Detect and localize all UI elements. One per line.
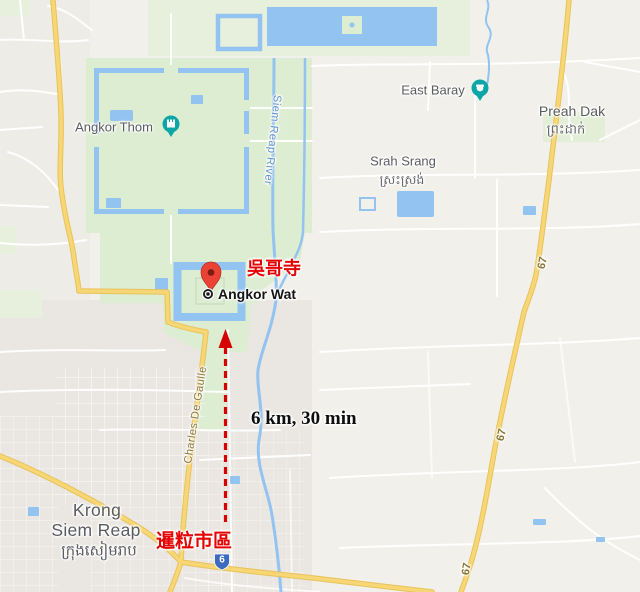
castle-icon [167, 120, 175, 128]
krong-siem-reap-label-line2[interactable]: Siem Reap [51, 520, 140, 540]
urban-area-west [0, 0, 90, 300]
neak-pean-pond [350, 23, 355, 28]
angkor-thom-label[interactable]: Angkor Thom [75, 121, 153, 136]
angkor-thom-moat [97, 71, 247, 212]
east-baray-label[interactable]: East Baray [401, 84, 465, 99]
route-67-label-north: 67 [536, 256, 551, 271]
srah-srang-khmer-label: ស្រះស្រង់ [380, 173, 425, 187]
krong-siem-reap-label-line1[interactable]: Krong [73, 500, 121, 520]
preah-dak-khmer-label: ព្រះដាក់ [547, 123, 585, 138]
route-67-label-south: 67 [460, 562, 475, 576]
distance-annotation: 6 km, 30 min [251, 408, 357, 430]
route-6-shield: 6 [214, 554, 230, 571]
route-6-number: 6 [214, 555, 230, 566]
route-67-label-mid: 67 [494, 428, 509, 443]
angkor-wat-label[interactable]: Angkor Wat [218, 286, 296, 302]
krong-siem-reap-khmer-label: ក្រុងសៀមរាប [61, 542, 137, 559]
angkor-wat-chinese-annotation: 吳哥寺 [247, 259, 301, 280]
srah-srang-label[interactable]: Srah Srang [370, 155, 436, 170]
angkor-wat-target-icon [202, 288, 214, 300]
preah-dak-label[interactable]: Preah Dak [539, 103, 605, 119]
siem-reap-downtown-chinese-annotation: 暹粒市區 [156, 531, 232, 553]
srah-srang-pond [397, 191, 434, 217]
map-canvas[interactable]: Angkor Thom East Baray Preah Dak ព្រះដាក… [0, 0, 640, 592]
